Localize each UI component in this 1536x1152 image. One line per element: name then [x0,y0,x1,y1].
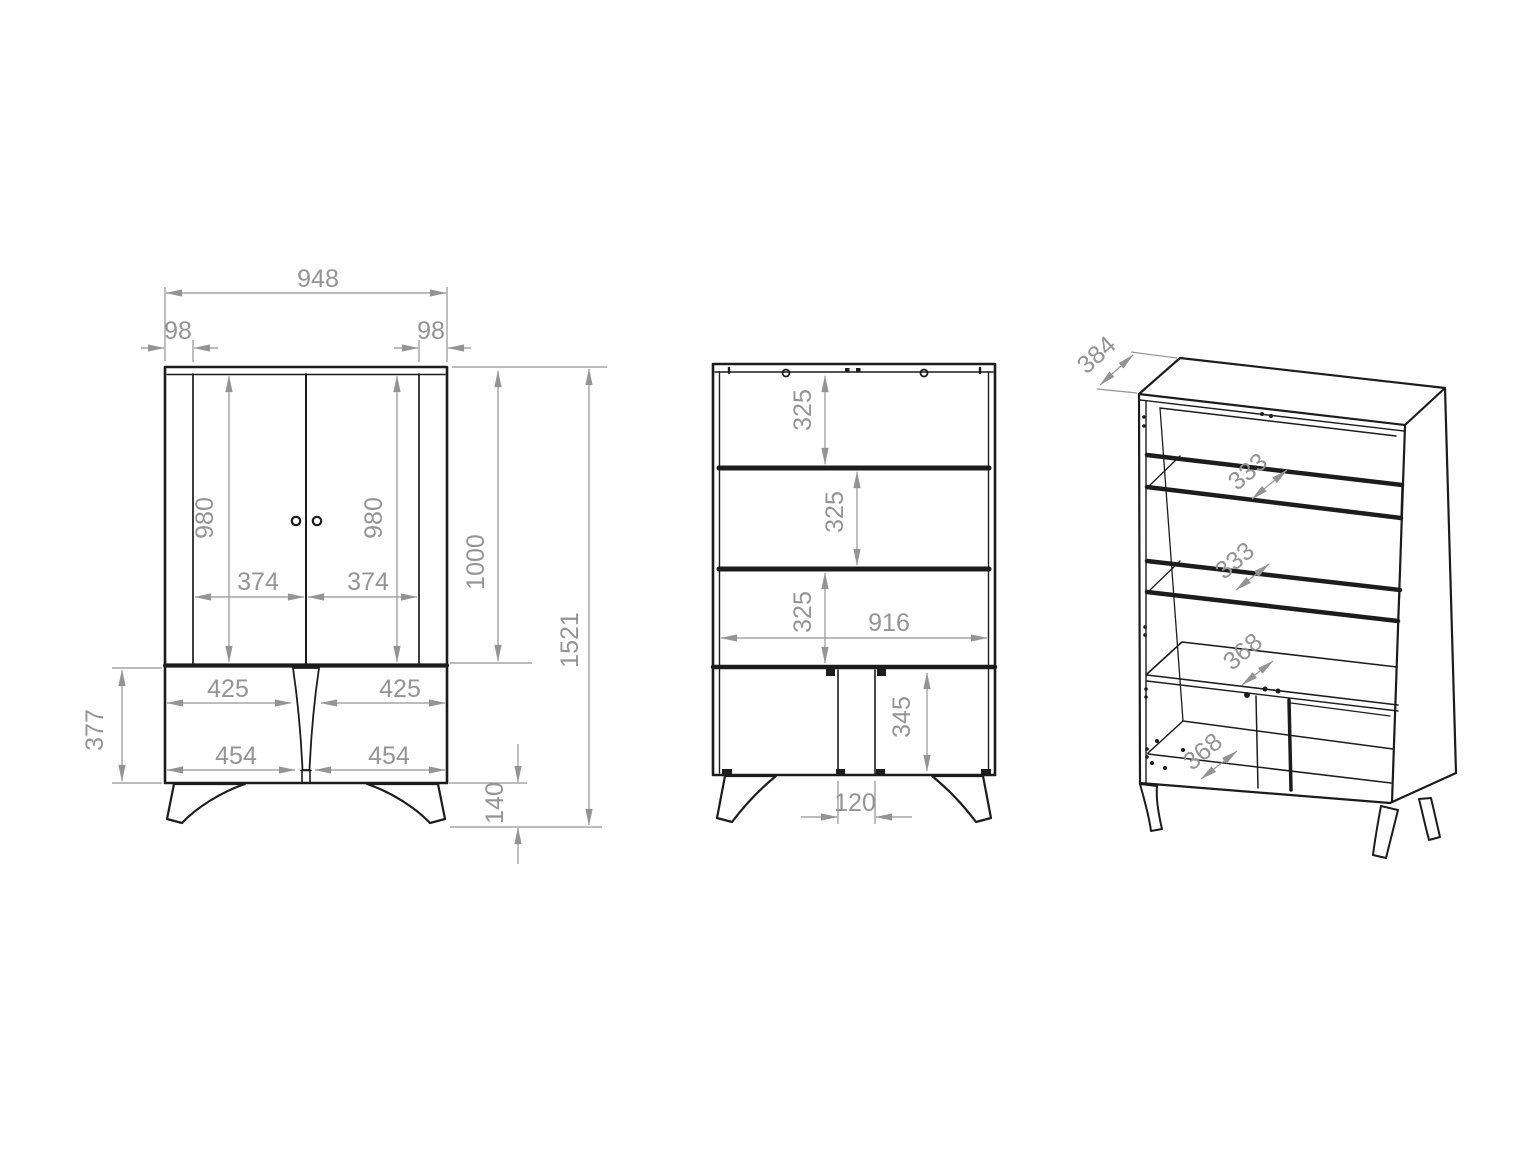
dim-lower-right-door: 454 [368,742,410,770]
bottom-door-edge [1289,700,1291,790]
dim-glass-shelf-depth-1: 333 [1223,448,1273,496]
dim-left-panel: 98 [164,317,192,345]
dim-leg-height: 140 [481,782,509,824]
internal-view: 325 325 325 916 345 120 [713,364,995,824]
dim-shelf-gap-3: 325 [789,591,817,633]
door-knob-left [292,517,300,525]
dim-shelf-gap-1: 325 [789,389,817,431]
hinge-right [877,668,886,676]
dim-internal-width: 916 [868,609,910,637]
top-center-mark-2 [856,368,861,373]
glass-shelf-2-back [1147,561,1400,590]
bottom-mark-4 [981,769,991,774]
bottom-door-top [1291,703,1390,716]
iso-leg-front-left [1140,784,1162,831]
dim-right-panel: 98 [417,317,445,345]
technical-drawing-canvas: 948 98 98 980 980 374 374 1000 1521 425 … [0,0,1536,1152]
center-ornament [293,668,319,770]
glass-shelf-1-front [1147,487,1401,518]
bottom-divider-left [1256,696,1258,788]
dim-bottom-panel-depth: 368 [1178,728,1228,776]
hinge-left [826,668,835,676]
top-face [1139,358,1445,425]
cam-lock-left [783,370,790,377]
dim-overall-height: 1521 [556,612,584,668]
back-wall-top-edge [1160,408,1396,436]
back-right-edge [1445,388,1456,773]
dim-center-divider-width: 120 [834,789,876,817]
dim-lower-left-width: 425 [207,675,249,703]
bottom-mark-2 [836,769,845,774]
fixed-shelf-front-bottom [1147,681,1398,711]
fixed-shelf-front-top [1147,675,1398,705]
dim-shelf-gap-2: 325 [821,491,849,533]
leg-left [717,776,776,822]
leg-right [932,776,991,822]
center-ornament-foot [301,770,311,782]
front-leg-left [167,784,245,823]
dim-bottom-compartment-height: 345 [888,696,916,738]
bottom-front-edge [1140,783,1390,803]
iso-leg-front-right [1373,806,1398,858]
front-left-edge [1139,394,1140,784]
dim-right-door-width: 374 [347,568,389,596]
front-leg-right [367,784,445,823]
dim-fixed-shelf-depth: 368 [1218,628,1268,676]
dim-left-door-height: 980 [191,497,219,539]
front-view: 948 98 98 980 980 374 374 1000 1521 425 … [81,265,607,864]
dim-left-door-width: 374 [237,568,279,596]
bottom-mark-3 [876,769,885,774]
dim-upper-section-height: 1000 [462,534,490,590]
isometric-view: 384 333 333 368 368 [1072,331,1456,858]
glass-shelf-2-front [1147,592,1398,621]
bottom-mark-1 [722,769,732,774]
dim-lower-section-height: 377 [81,709,109,751]
top-center-mark-1 [845,368,850,373]
fixed-shelf-back [1147,642,1397,674]
dim-overall-width: 948 [297,265,339,293]
glass-shelf-2-edges [1148,561,1400,621]
iso-leg-back-right [1419,798,1440,840]
dim-lower-left-door: 454 [215,742,257,770]
dim-right-door-height: 980 [360,497,388,539]
cam-lock-right [921,370,928,377]
door-knob-right [313,517,321,525]
drawing-svg: 948 98 98 980 980 374 374 1000 1521 425 … [0,0,1536,1152]
glass-shelf-1-edges [1148,456,1402,518]
dim-lower-right-width: 425 [379,675,421,703]
